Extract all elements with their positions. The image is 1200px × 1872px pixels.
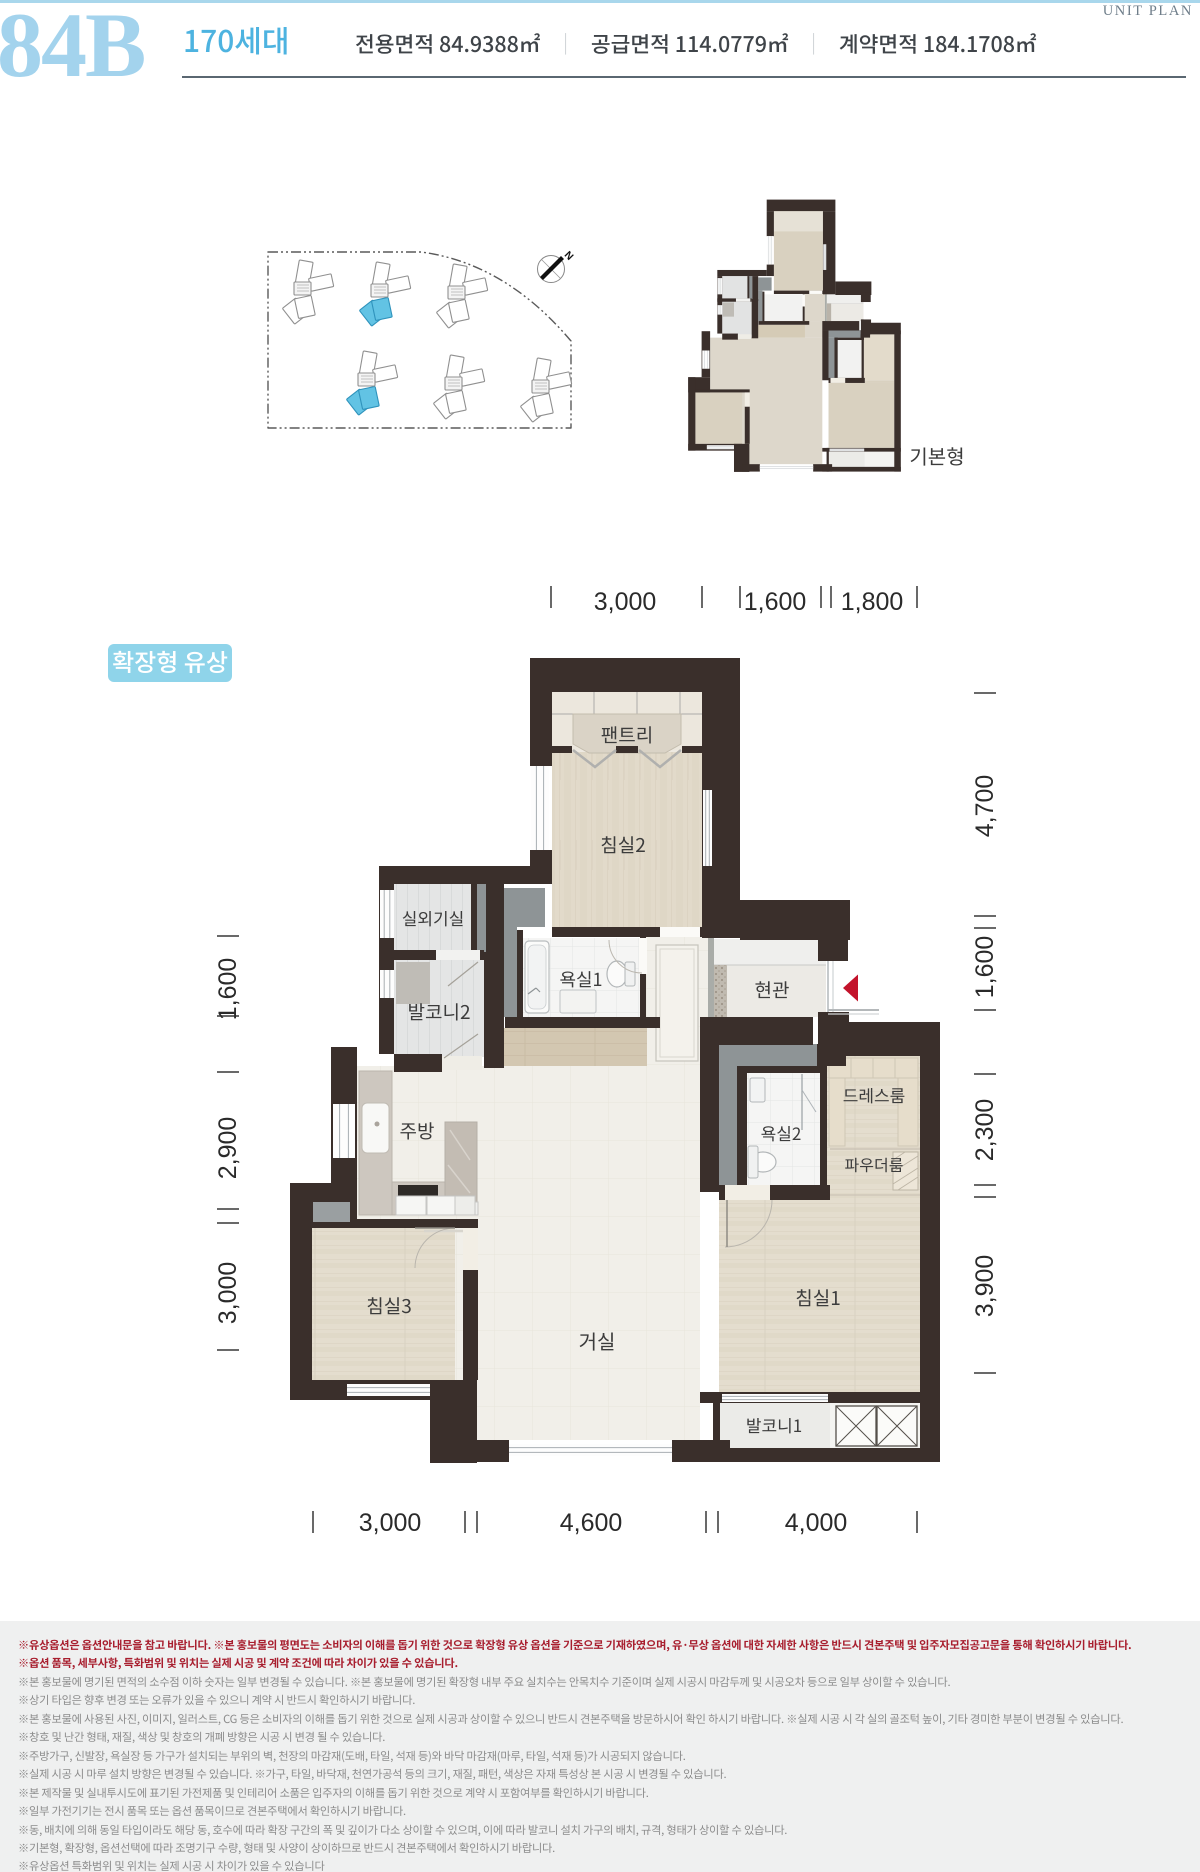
svg-text:욕실2: 욕실2	[761, 1120, 802, 1145]
svg-text:3,000: 3,000	[214, 1262, 242, 1325]
svg-text:4,700: 4,700	[971, 775, 999, 838]
svg-text:확장형 유상: 확장형 유상	[112, 643, 228, 678]
svg-text:3,000: 3,000	[359, 1509, 422, 1537]
svg-text:2,900: 2,900	[214, 1117, 242, 1180]
svg-text:주방: 주방	[400, 1117, 435, 1144]
svg-text:거실: 거실	[579, 1326, 616, 1355]
svg-text:욕실1: 욕실1	[559, 966, 602, 992]
svg-text:1,600: 1,600	[744, 588, 807, 616]
svg-text:2,300: 2,300	[971, 1099, 999, 1162]
svg-text:발코니1: 발코니1	[746, 1412, 802, 1437]
svg-text:1,600: 1,600	[214, 958, 242, 1021]
svg-text:실외기실: 실외기실	[402, 905, 465, 930]
svg-text:드레스룸: 드레스룸	[843, 1082, 906, 1107]
svg-text:기본형: 기본형	[909, 441, 964, 470]
svg-text:1,600: 1,600	[971, 936, 999, 999]
svg-text:4,600: 4,600	[560, 1509, 623, 1537]
svg-text:침실2: 침실2	[600, 831, 646, 858]
svg-text:파우더룸: 파우더룸	[845, 1152, 904, 1176]
svg-text:현관: 현관	[755, 976, 790, 1003]
svg-text:발코니2: 발코니2	[408, 998, 471, 1025]
svg-text:팬트리: 팬트리	[601, 721, 653, 748]
svg-text:4,000: 4,000	[785, 1509, 848, 1537]
svg-text:N: N	[562, 249, 576, 263]
svg-text:1,800: 1,800	[841, 588, 904, 616]
svg-text:침실3: 침실3	[366, 1292, 412, 1319]
svg-text:3,000: 3,000	[594, 588, 657, 616]
svg-text:3,900: 3,900	[971, 1255, 999, 1318]
svg-text:침실1: 침실1	[795, 1284, 841, 1311]
